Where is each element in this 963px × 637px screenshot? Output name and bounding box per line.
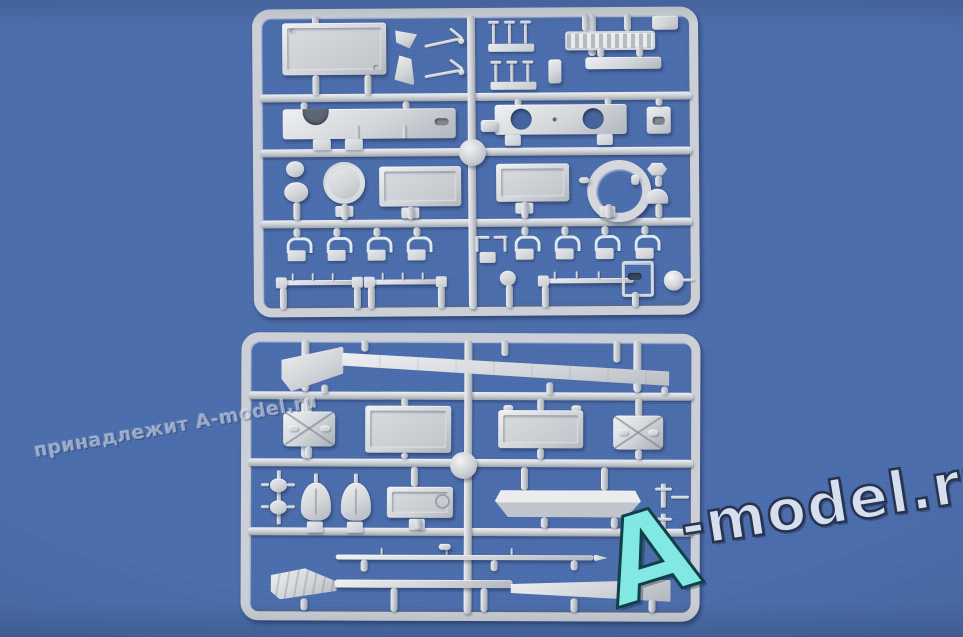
stub [521,227,528,236]
stub [361,560,368,572]
pin-crossbar [520,21,531,24]
angle-bracket [504,236,507,252]
stub [521,467,528,490]
box-slot [653,117,665,125]
wide-panel [498,410,583,448]
pad [328,250,346,261]
stub [541,517,548,528]
stub [438,286,445,308]
ball-part [664,271,684,291]
hatch-hole [583,108,604,129]
bolted-hatch [365,406,451,453]
stub [601,226,608,235]
stub [542,285,549,307]
rail-pin [598,271,600,278]
pin-crossbar [504,21,515,24]
pulley-stub [261,483,269,486]
pad [505,135,521,146]
stub [364,75,371,95]
top-sprue [252,6,700,317]
l-bracket [548,59,561,83]
bracket-slot [628,273,642,280]
skirt-blade-mid [335,580,513,589]
stub [391,588,398,612]
rod-pin [511,548,513,555]
step-bracket [481,120,497,132]
pulley [270,478,287,492]
stub [597,47,604,57]
vent-dot [290,28,296,34]
stub [655,204,662,218]
rail-pin [422,272,424,279]
rect-hatch [496,163,569,202]
stub [521,202,528,219]
angle-bracket [476,236,479,252]
stub [501,340,508,356]
hatch-handle [320,425,330,431]
round-cap [284,182,308,202]
pulley-stub [287,505,295,508]
stub [632,292,639,307]
stub [546,382,553,394]
photo-stage: принадлежит A-model.ru A-model.ru [0,0,963,637]
pad [596,248,614,259]
stub [571,598,578,612]
pin-post [356,125,359,139]
stub [537,448,544,459]
pad [597,134,613,145]
mounting-rail [278,280,362,286]
dome-cap [646,189,668,204]
rod-ball [458,38,464,44]
pin-crossbar [490,61,501,64]
pulley-stub [261,505,269,508]
pad [488,44,534,52]
rail-pin [554,271,556,278]
stub [354,287,361,309]
corner-plate [652,16,678,30]
rail-pin [382,273,384,280]
stub [656,98,663,106]
pin-post [314,473,318,482]
pulley [270,500,287,514]
rod-tab [439,544,451,550]
roof-panel [282,23,386,76]
stub [401,453,408,459]
sprue-node [459,139,486,166]
pad [556,248,574,259]
ring-tab [631,175,639,185]
oval-slot [435,118,449,125]
stub [613,340,620,362]
vent-dot [373,65,379,71]
ball-stub [682,278,694,281]
stub [661,387,668,395]
stub [491,560,498,571]
stub [413,227,420,236]
rect-hatch [379,166,461,207]
rail-pin [332,273,334,280]
pin-post [403,124,406,138]
stub [293,202,300,220]
hatch-handle [618,430,628,436]
bolt-dot [553,117,557,121]
pin-crossbar [506,61,517,64]
stub [624,14,631,31]
rail-pin [312,273,314,280]
mounting-rail [366,279,444,285]
shield-seam [315,488,317,514]
support-bar [585,57,661,70]
stub [411,467,418,487]
pin-post [526,62,529,82]
rail-pin [576,271,578,278]
hatch-ring [587,160,651,222]
stub [636,47,643,57]
pad [368,250,386,261]
pin-post [508,22,511,44]
stub [301,598,308,610]
stub [481,588,488,612]
stub [305,446,312,458]
hatch-handle [648,430,658,436]
pin-post [492,22,495,44]
stub [341,204,348,220]
stub [635,399,642,417]
mounting-rail [540,278,634,284]
stub [280,287,287,309]
hatch-handle [288,425,298,431]
stub [605,204,612,218]
pad [636,248,654,259]
stub [506,285,513,308]
pad [347,522,363,533]
rail-pin [292,273,294,280]
stub [312,75,319,95]
stub [571,560,578,570]
stub [601,467,608,490]
stub [641,226,648,235]
pin-post [510,62,513,82]
sprue-node [450,452,477,479]
shield-seam [355,489,357,515]
pin-crossbar [522,61,533,64]
pin-post [354,474,358,483]
brand-watermark-rest: -model.ru [676,447,963,555]
stub [635,450,642,460]
pad [288,250,306,261]
round-cap [286,161,304,177]
stub [333,228,340,237]
stub [582,14,589,31]
pin-crossbar [488,21,499,24]
hatch-hole [511,109,532,130]
stub [407,206,414,219]
stub [361,340,368,352]
stub [415,519,422,529]
rod-pin [381,548,383,555]
pad [408,249,426,260]
pin-post [494,62,497,82]
small-wheel [500,271,516,286]
pulley-stub [287,483,295,486]
pad [345,139,363,150]
stub [655,176,662,187]
panel-ring [435,494,450,509]
pad [516,249,534,260]
pad [480,252,496,263]
rod-ball [458,69,464,75]
stub [561,226,568,235]
tie-rod [336,555,594,561]
ring-tab [579,177,589,183]
pad [307,521,323,532]
stub [368,287,375,309]
round-hatch [323,162,365,204]
pad [490,82,536,90]
stub [293,228,300,237]
pin-post [524,22,527,44]
rail-pin [402,273,404,280]
stub [373,228,380,237]
runner [633,341,641,393]
pad [313,139,331,150]
